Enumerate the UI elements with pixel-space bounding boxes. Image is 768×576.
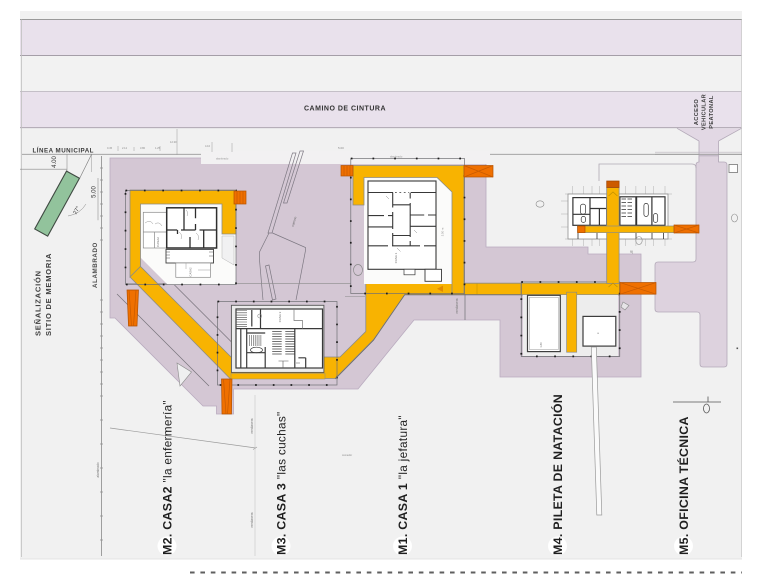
svg-text:5.00: 5.00 [92,186,98,198]
svg-text:M1. CASA 1 "la jefatura": M1. CASA 1 "la jefatura" [396,415,410,555]
svg-text:12.30: 12.30 [170,140,177,144]
svg-text:medianera: medianera [250,512,254,527]
svg-text:5.00: 5.00 [338,146,344,150]
svg-text:M3. CASA 3 "las cuchas": M3. CASA 3 "las cuchas" [275,411,289,555]
svg-text:CASA2: CASA2 [156,237,160,247]
svg-text:comedor: comedor [342,453,352,457]
svg-text:4.00: 4.00 [52,156,58,168]
svg-text:CAMINO DE CINTURA: CAMINO DE CINTURA [304,106,386,113]
svg-text:1.80: 1.80 [539,342,543,348]
svg-text:2.12: 2.12 [122,146,128,150]
svg-text:PEATONAL: PEATONAL [709,95,715,129]
svg-text:M5. OFICINA TÉCNICA: M5. OFICINA TÉCNICA [676,416,691,555]
svg-text:4.10: 4.10 [205,144,211,148]
svg-text:medianera: medianera [250,418,254,433]
svg-text:ALAMBRADO: ALAMBRADO [92,242,99,288]
svg-text:medianera: medianera [455,298,459,313]
svg-text:SEÑALIZACIÓN: SEÑALIZACIÓN [34,270,43,336]
svg-text:0.45: 0.45 [107,146,113,150]
svg-text:CASA2: CASA2 [189,267,193,277]
svg-text:3.80: 3.80 [140,146,146,150]
svg-text:alambrado: alambrado [216,157,229,161]
svg-text:alambrado: alambrado [96,462,100,477]
svg-text:SITIO DE MEMORIA: SITIO DE MEMORIA [44,253,53,336]
svg-text:ACCESO: ACCESO [694,99,700,126]
svg-text:LÍNEA MUNICIPAL: LÍNEA MUNICIPAL [33,147,94,155]
svg-text:CASA 3: CASA 3 [278,311,282,322]
svg-text:M2. CASA2 "la enfermería": M2. CASA2 "la enfermería" [161,400,175,555]
svg-text:1.25: 1.25 [155,146,161,150]
svg-text:alambrado: alambrado [390,155,403,159]
svg-text:3.50 m: 3.50 m [441,227,445,236]
svg-text:M4. PILETA DE NATACIÓN: M4. PILETA DE NATACIÓN [550,394,565,555]
svg-text:CASA 1: CASA 1 [394,252,398,263]
svg-text:9): 9) [630,250,633,254]
svg-text:VEHICULAR: VEHICULAR [702,94,708,130]
